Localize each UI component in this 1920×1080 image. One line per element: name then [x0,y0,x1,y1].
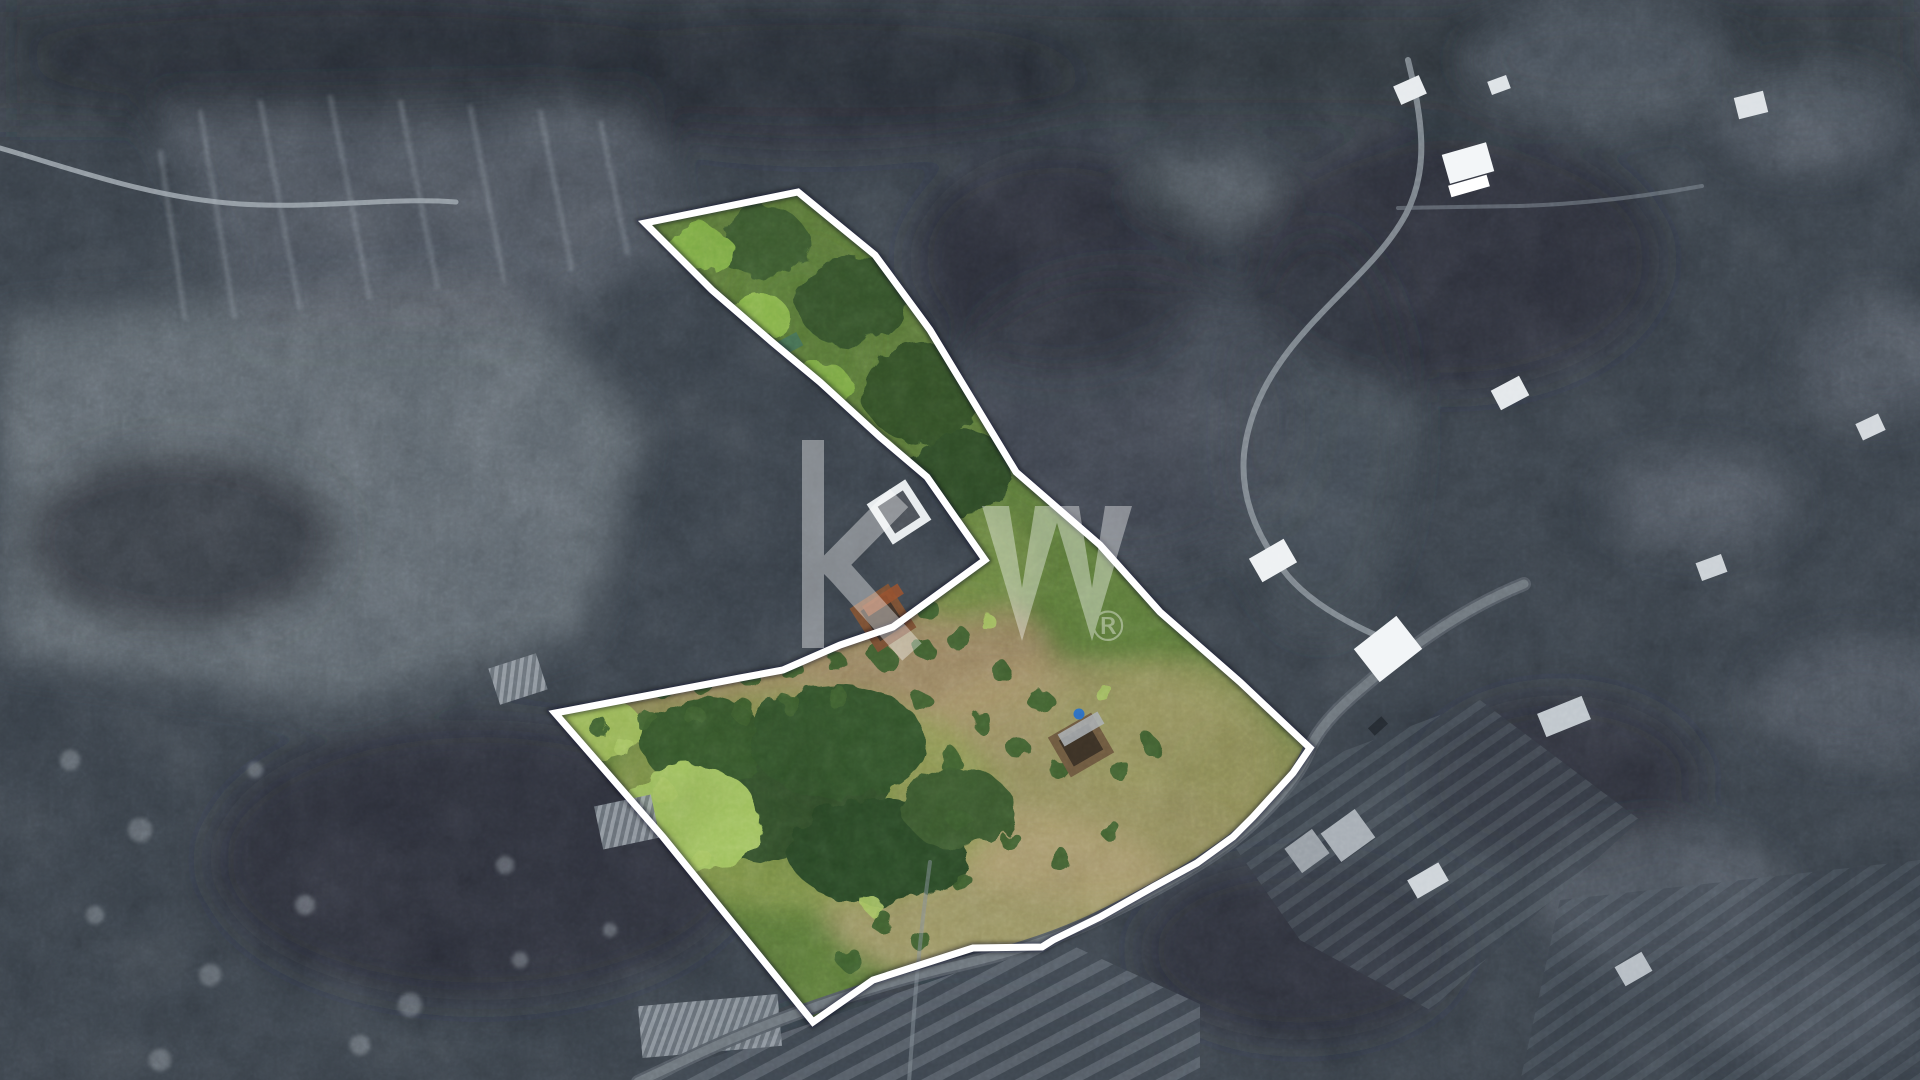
fine-grain-overlay [0,0,1920,1080]
photo-svg: kw ® [0,0,1920,1080]
registered-trademark-symbol: ® [1087,602,1129,651]
aerial-photo-stage: kw ® [0,0,1920,1080]
